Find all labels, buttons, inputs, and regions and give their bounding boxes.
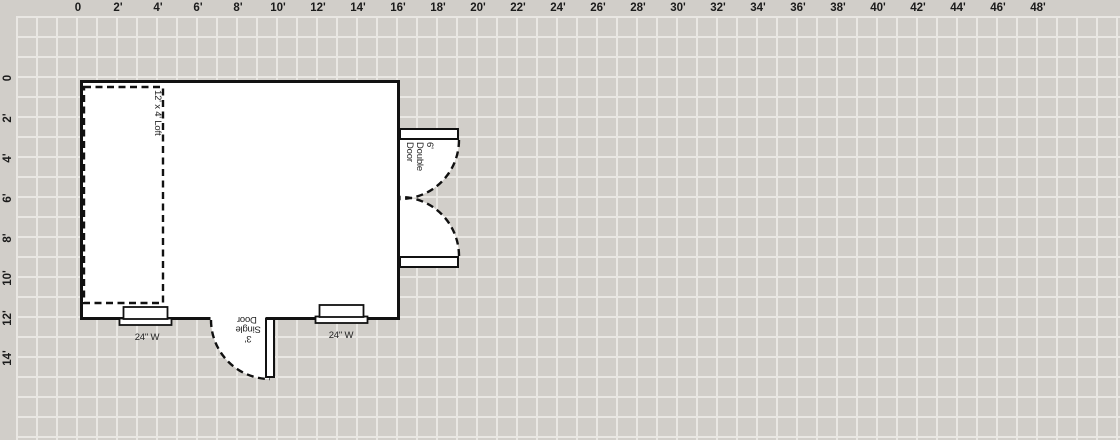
- window-glass[interactable]: [124, 307, 168, 319]
- loft-label: 12' x 4' Loft: [152, 90, 163, 136]
- building-outline[interactable]: [82, 82, 399, 319]
- window-label-right: 24" W: [329, 330, 354, 341]
- double-door-leaf-top[interactable]: [400, 129, 458, 139]
- window-label-left: 24" W: [135, 332, 160, 343]
- double-door-leaf-bottom[interactable]: [400, 257, 458, 267]
- single-door-leaf[interactable]: [266, 319, 274, 377]
- window-glass[interactable]: [320, 305, 364, 317]
- floor-plan: 12' x 4' Loft 6' Double Door 3' Single D…: [0, 0, 1120, 440]
